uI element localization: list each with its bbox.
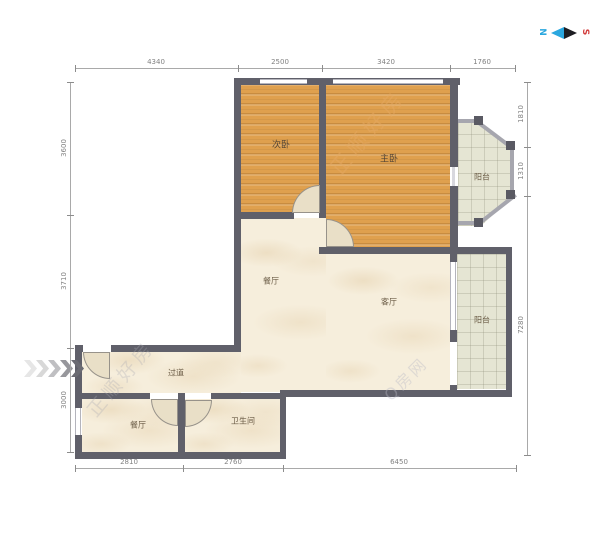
dimension-label: 7280: [517, 316, 525, 334]
dimension-tick: [67, 82, 74, 83]
dimension-label: 1810: [517, 105, 525, 123]
wall: [319, 247, 458, 254]
wall: [111, 345, 237, 352]
room-label-second-bedroom: 次卧: [272, 138, 290, 151]
room-label-bathroom: 卫生间: [231, 416, 255, 427]
dimension-label: 1310: [517, 162, 525, 180]
dimension-label: 3600: [60, 139, 68, 157]
dimension-tick: [516, 465, 517, 472]
dimension-label: 4340: [147, 58, 165, 66]
wall: [450, 78, 458, 167]
wall: [234, 212, 294, 219]
window: [260, 79, 307, 84]
wall: [178, 393, 185, 459]
living-floor: [326, 253, 450, 392]
dimension-tick: [183, 465, 184, 472]
wall: [450, 330, 457, 342]
room-label-master-bedroom: 主卧: [380, 152, 398, 165]
room-label-balcony-right: 阳台: [474, 315, 490, 326]
dimension-label: 2810: [120, 458, 138, 466]
dimension-tick: [67, 215, 74, 216]
dimension-line-right: [527, 82, 528, 455]
railing-post: [474, 218, 483, 227]
dimension-label: 2500: [271, 58, 289, 66]
wall: [234, 212, 241, 352]
wall: [450, 254, 457, 262]
wall: [450, 385, 457, 390]
dimension-line-bottom: [75, 468, 516, 469]
wall: [280, 390, 286, 459]
dimension-tick: [75, 465, 76, 472]
dimension-label: 6450: [390, 458, 408, 466]
dimension-label: 3420: [377, 58, 395, 66]
entrance-arrow-icon: [36, 360, 49, 377]
wall: [211, 393, 286, 399]
wall: [319, 84, 326, 218]
wall: [458, 247, 512, 254]
window: [75, 408, 81, 435]
dimension-line-left: [70, 82, 71, 452]
dining-floor: [241, 218, 326, 392]
dimension-label: 1760: [473, 58, 491, 66]
compass-south-label: S: [580, 29, 590, 35]
wall: [450, 186, 458, 247]
room-label-kitchen: 餐厅: [130, 420, 146, 431]
dimension-tick: [67, 348, 74, 349]
entrance-arrow-icon: [24, 360, 37, 377]
room-label-living: 客厅: [381, 297, 397, 308]
entrance-arrow-icon: [60, 360, 73, 377]
dimension-tick: [450, 65, 451, 72]
window: [450, 262, 456, 330]
dimension-tick: [524, 147, 531, 148]
railing-post: [474, 116, 483, 125]
dimension-tick: [524, 455, 531, 456]
dimension-label: 3000: [60, 391, 68, 409]
wall: [280, 390, 512, 397]
room-label-balcony-top: 阳台: [474, 172, 490, 183]
railing-post: [506, 190, 515, 199]
dimension-tick: [524, 82, 531, 83]
dimension-tick: [524, 196, 531, 197]
dimension-label: 3710: [60, 272, 68, 290]
wall: [506, 247, 512, 396]
dimension-tick: [238, 65, 239, 72]
compass-north-label: N: [537, 28, 547, 36]
dimension-label: 2760: [224, 458, 242, 466]
compass-needle-icon: [564, 27, 577, 39]
compass-needle-icon: [551, 27, 564, 39]
balcony-slide-door: [452, 167, 455, 186]
dimension-tick: [67, 452, 74, 453]
entrance-arrow-icon: [48, 360, 61, 377]
railing-post: [506, 141, 515, 150]
dimension-tick: [322, 65, 323, 72]
dimension-tick: [515, 65, 516, 72]
master-bedroom-floor: [326, 84, 450, 247]
floor-plan-canvas: N S 4340 2500 3420 1760 3600 3710 3000 1…: [0, 0, 600, 536]
wall: [78, 393, 150, 399]
dimension-tick: [283, 465, 284, 472]
dimension-tick: [75, 65, 76, 72]
room-label-dining: 餐厅: [263, 276, 279, 287]
window: [333, 79, 443, 84]
wall: [234, 78, 241, 219]
room-label-hallway: 过道: [168, 368, 184, 379]
